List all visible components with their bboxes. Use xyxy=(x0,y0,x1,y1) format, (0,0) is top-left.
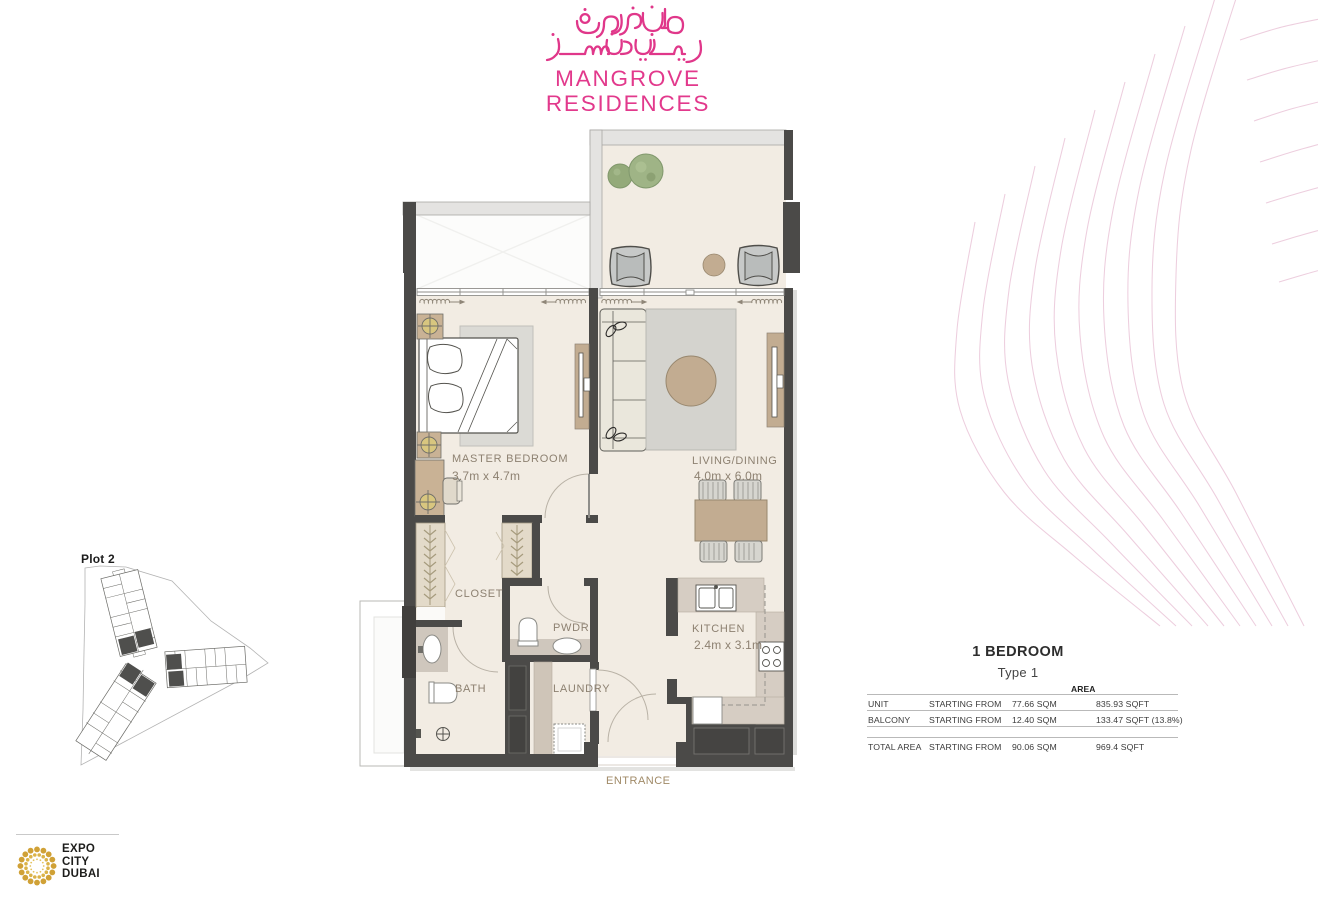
svg-text:PWDR: PWDR xyxy=(553,622,589,634)
svg-text:LAUNDRY: LAUNDRY xyxy=(553,683,610,695)
svg-text:2.4m x 3.1m: 2.4m x 3.1m xyxy=(694,638,762,652)
svg-text:3.7m x 4.7m: 3.7m x 4.7m xyxy=(452,469,520,483)
svg-text:BATH: BATH xyxy=(455,683,486,695)
svg-text:MASTER BEDROOM: MASTER BEDROOM xyxy=(452,453,568,465)
svg-text:CLOSET: CLOSET xyxy=(455,588,503,600)
svg-text:KITCHEN: KITCHEN xyxy=(692,623,745,635)
svg-text:4.0m x 6.0m: 4.0m x 6.0m xyxy=(694,469,762,483)
svg-text:LIVING/DINING: LIVING/DINING xyxy=(692,455,777,467)
svg-text:ENTRANCE: ENTRANCE xyxy=(606,775,671,787)
